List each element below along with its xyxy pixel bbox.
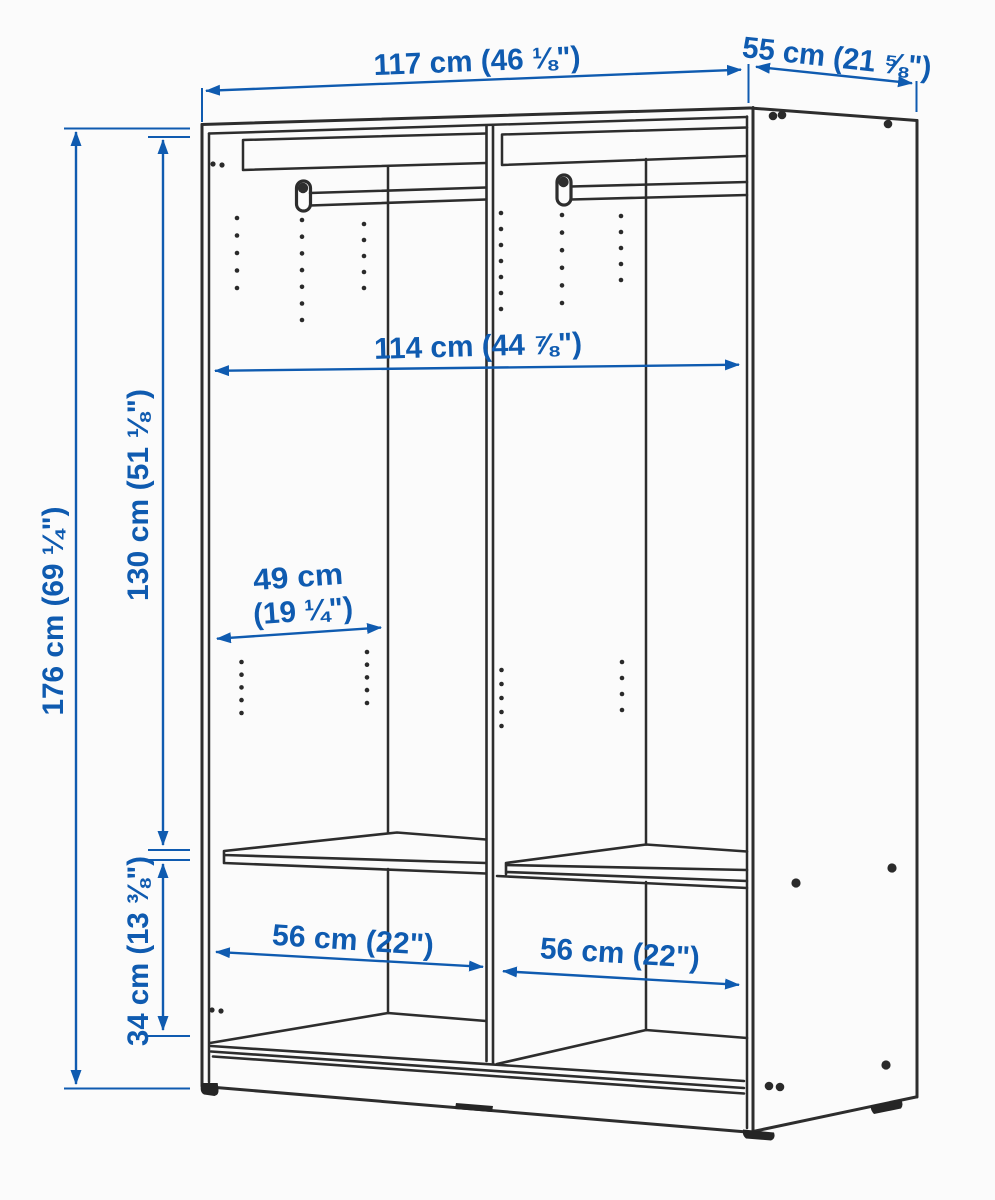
svg-text:(19 ¼"): (19 ¼") xyxy=(252,592,354,632)
svg-text:114 cm (44 ⅞"): 114 cm (44 ⅞") xyxy=(374,327,583,366)
svg-text:34 cm (13 ⅜"): 34 cm (13 ⅜") xyxy=(122,856,155,1046)
svg-text:49 cm: 49 cm xyxy=(252,558,344,597)
svg-text:130 cm (51 ⅛"): 130 cm (51 ⅛") xyxy=(122,389,155,601)
svg-text:176 cm (69 ¼"): 176 cm (69 ¼") xyxy=(37,507,70,716)
